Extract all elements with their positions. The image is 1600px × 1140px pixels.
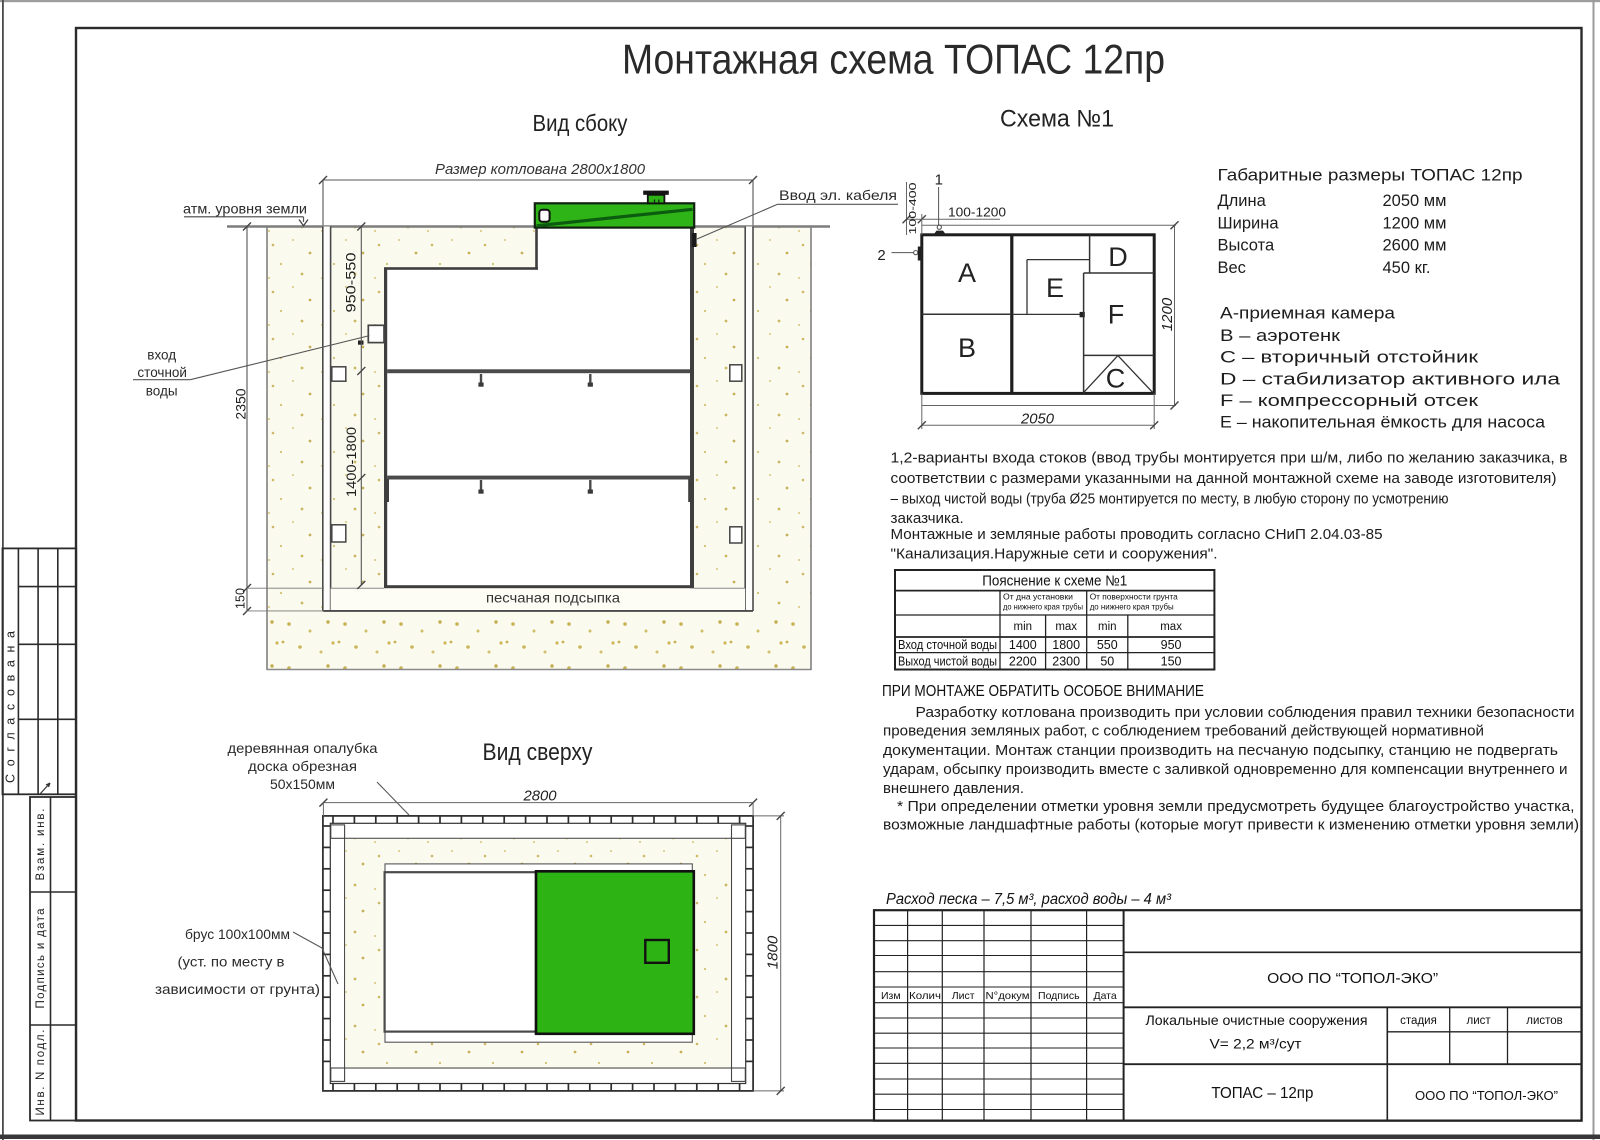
svg-text:Взам. инв.: Взам. инв.: [35, 809, 47, 881]
svg-text:сточной: сточной: [137, 365, 187, 380]
svg-text:ударам, обсыпку производить вм: ударам, обсыпку производить вместе с зал…: [883, 761, 1568, 778]
svg-text:* При определении отметки уров: * При определении отметки уровня земли п…: [897, 798, 1575, 815]
svg-text:Лист: Лист: [952, 990, 975, 1002]
svg-text:E: E: [1046, 273, 1064, 303]
svg-text:1800: 1800: [764, 935, 781, 969]
svg-text:N°докум: N°докум: [986, 990, 1030, 1002]
svg-text:Е – накопительная ёмкость для: Е – накопительная ёмкость для насоса: [1220, 414, 1546, 432]
svg-text:Ввод эл. кабеля: Ввод эл. кабеля: [779, 187, 897, 203]
svg-text:1400: 1400: [1009, 638, 1037, 652]
svg-text:1200 мм: 1200 мм: [1383, 214, 1447, 232]
svg-text:950-550: 950-550: [344, 253, 359, 313]
svg-text:C: C: [1106, 364, 1126, 394]
svg-text:min: min: [1098, 621, 1117, 633]
svg-text:Вход сточной воды: Вход сточной воды: [898, 638, 997, 652]
svg-text:А-приемная камера: А-приемная камера: [1220, 305, 1396, 323]
svg-text:D – стабилизатор активного ил: D – стабилизатор активного ила: [1220, 371, 1561, 389]
svg-text:150: 150: [233, 588, 247, 609]
svg-text:F – компрессорный отсек: F – компрессорный отсек: [1220, 392, 1479, 410]
svg-text:Инв. N подл.: Инв. N подл.: [35, 1030, 47, 1116]
svg-text:450 кг.: 450 кг.: [1383, 259, 1431, 277]
svg-text:2200: 2200: [1009, 655, 1037, 669]
svg-text:лист: лист: [1467, 1015, 1492, 1027]
svg-text:100-400: 100-400: [907, 182, 919, 234]
svg-text:V= 2,2 м³/сут: V= 2,2 м³/сут: [1210, 1036, 1303, 1052]
svg-text:Длина: Длина: [1218, 192, 1267, 210]
svg-text:1800: 1800: [1052, 638, 1080, 652]
svg-text:(уст. по месту в: (уст. по месту в: [178, 954, 285, 970]
svg-text:Вес: Вес: [1218, 259, 1246, 277]
svg-text:2: 2: [877, 247, 885, 264]
svg-text:F: F: [1108, 300, 1125, 330]
svg-text:листов: листов: [1526, 1015, 1563, 1027]
svg-text:заказчика.: заказчика.: [891, 510, 964, 527]
svg-text:2300: 2300: [1052, 655, 1080, 669]
svg-text:"Канализация.Наружные сети и с: "Канализация.Наружные сети и сооружения"…: [891, 545, 1218, 562]
svg-text:деревянная опалубка: деревянная опалубка: [228, 740, 378, 756]
svg-text:ТОПАС – 12пр: ТОПАС – 12пр: [1211, 1085, 1313, 1102]
svg-text:Согласована: Согласована: [3, 631, 17, 783]
svg-text:Изм: Изм: [881, 990, 901, 1002]
svg-text:2800: 2800: [523, 788, 558, 805]
svg-text:песчаная подсыпка: песчаная подсыпка: [486, 590, 620, 606]
svg-text:Пояснение к схеме №1: Пояснение к схеме №1: [982, 574, 1127, 590]
svg-text:min: min: [1014, 621, 1033, 633]
svg-text:B: B: [958, 333, 976, 363]
svg-text:стадия: стадия: [1400, 1015, 1437, 1027]
svg-text:Размер котлована 2800х1800: Размер котлована 2800х1800: [435, 161, 646, 178]
svg-text:Вид сбоку: Вид сбоку: [533, 110, 628, 136]
svg-text:50х150мм: 50х150мм: [270, 776, 335, 792]
svg-text:доска обрезная: доска обрезная: [248, 758, 357, 774]
svg-text:max: max: [1160, 621, 1182, 633]
svg-text:150: 150: [1161, 655, 1182, 669]
svg-text:В – аэротенк: В – аэротенк: [1220, 327, 1341, 345]
svg-text:атм. уровня земли: атм. уровня земли: [183, 201, 307, 217]
svg-text:50: 50: [1100, 655, 1114, 669]
svg-text:550: 550: [1097, 638, 1118, 652]
svg-text:ПРИ МОНТАЖЕ ОБРАТИТЬ ОСОБОЕ ВН: ПРИ МОНТАЖЕ ОБРАТИТЬ ОСОБОЕ ВНИМАНИЕ: [882, 683, 1204, 700]
svg-text:Дата: Дата: [1093, 990, 1116, 1002]
svg-text:Вид сверху: Вид сверху: [483, 739, 593, 766]
svg-text:1: 1: [935, 172, 943, 189]
svg-text:до нижнего края трубы: до нижнего края трубы: [1003, 602, 1083, 612]
svg-text:От дна установки: От дна установки: [1003, 592, 1073, 602]
svg-text:– выход чистой воды (труба Ø25: – выход чистой воды (труба Ø25 монтирует…: [891, 491, 1449, 508]
svg-text:Локальные очистные сооружения: Локальные очистные сооружения: [1146, 1012, 1368, 1028]
svg-text:брус 100х100мм: брус 100х100мм: [185, 926, 290, 942]
svg-text:1,2-варианты входа стоков (вв: 1,2-варианты входа стоков (ввод трубы мо…: [891, 450, 1568, 467]
svg-text:Ширина: Ширина: [1218, 214, 1280, 232]
svg-text:Расход песка – 7,5 м³, расхо: Расход песка – 7,5 м³, расход воды – 4 м…: [886, 891, 1172, 908]
svg-text:Габаритные размеры ТОПАС 12пр: Габаритные размеры ТОПАС 12пр: [1218, 167, 1523, 185]
svg-text:Подпись и дата: Подпись и дата: [35, 908, 47, 1009]
svg-text:2600 мм: 2600 мм: [1383, 237, 1447, 255]
svg-text:воды: воды: [146, 384, 178, 399]
svg-text:A: A: [958, 258, 976, 288]
svg-text:зависимости от грунта): зависимости от грунта): [155, 981, 320, 997]
svg-text:документации. Монтаж станции п: документации. Монтаж станции производить…: [883, 742, 1558, 759]
svg-text:1400-1800: 1400-1800: [344, 427, 359, 497]
svg-text:вход: вход: [147, 348, 176, 363]
svg-text:до нижнего края трубы: до нижнего края трубы: [1090, 602, 1174, 612]
svg-text:950: 950: [1161, 638, 1182, 652]
svg-text:соответствии с размерами указа: соответствии с размерами указанными на д…: [891, 470, 1557, 487]
svg-text:Колич: Колич: [909, 990, 941, 1002]
svg-text:ООО ПО “ТОПОЛ-ЭКО”: ООО ПО “ТОПОЛ-ЭКО”: [1267, 970, 1438, 987]
svg-text:возможные ландшафтные работы (: возможные ландшафтные работы (которые мо…: [883, 816, 1579, 833]
svg-text:1200: 1200: [1159, 297, 1176, 331]
svg-text:С – вторичный отстойник: С – вторичный отстойник: [1220, 349, 1479, 367]
svg-text:проведения земляных работ, с с: проведения земляных работ, с соблюдением…: [883, 722, 1484, 739]
svg-text:2050 мм: 2050 мм: [1383, 192, 1447, 210]
svg-text:2350: 2350: [233, 388, 249, 419]
svg-text:Монтажная схема ТОПАС 12пр: Монтажная схема ТОПАС 12пр: [622, 36, 1165, 83]
svg-text:100-1200: 100-1200: [948, 206, 1006, 220]
svg-text:внешнего давления.: внешнего давления.: [883, 780, 1024, 797]
svg-text:ООО ПО “ТОПОЛ-ЭКО”: ООО ПО “ТОПОЛ-ЭКО”: [1415, 1088, 1558, 1103]
svg-text:D: D: [1108, 242, 1128, 272]
svg-text:Схема №1: Схема №1: [1000, 106, 1114, 133]
svg-text:Разработку котлована производи: Разработку котлована производить при усл…: [916, 704, 1575, 721]
svg-text:От поверхности грунта: От поверхности грунта: [1090, 592, 1178, 602]
svg-text:max: max: [1055, 621, 1077, 633]
svg-text:2050: 2050: [1020, 411, 1055, 428]
svg-text:Высота: Высота: [1218, 237, 1275, 255]
svg-text:Монтажные и земляные работы пр: Монтажные и земляные работы проводить со…: [891, 526, 1383, 543]
svg-text:Подпись: Подпись: [1038, 990, 1080, 1002]
svg-text:Выход чистой воды: Выход чистой воды: [898, 655, 997, 669]
